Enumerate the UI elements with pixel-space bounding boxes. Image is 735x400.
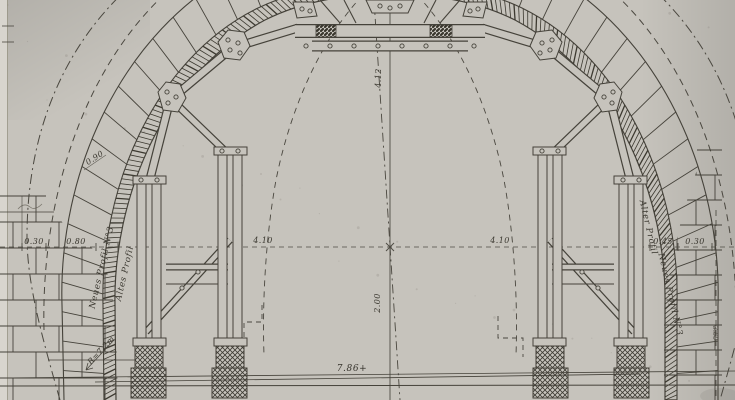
- dim-half-span-left: 4.10: [252, 236, 272, 245]
- dim-wall-left-a: 0.30: [24, 237, 43, 246]
- dim-base-span: 7.86+: [337, 364, 368, 374]
- dim-mid-height: 2.00: [373, 293, 382, 313]
- dim-wall-left-b: 0.80: [66, 237, 85, 246]
- drawing-canvas: 4.12 2.00 0.30 0.80 4.10 4.10 0.45 0.30 …: [0, 0, 735, 400]
- dim-wall-right-b: 0.30: [685, 237, 704, 246]
- dim-crown-height: 4.12: [374, 68, 383, 88]
- label-right-edge: 3.60: [711, 326, 719, 340]
- tunnel-profile-drawing: 4.12 2.00 0.30 0.80 4.10 4.10 0.45 0.30 …: [0, 0, 735, 400]
- dim-half-span-right: 4.10: [489, 236, 509, 245]
